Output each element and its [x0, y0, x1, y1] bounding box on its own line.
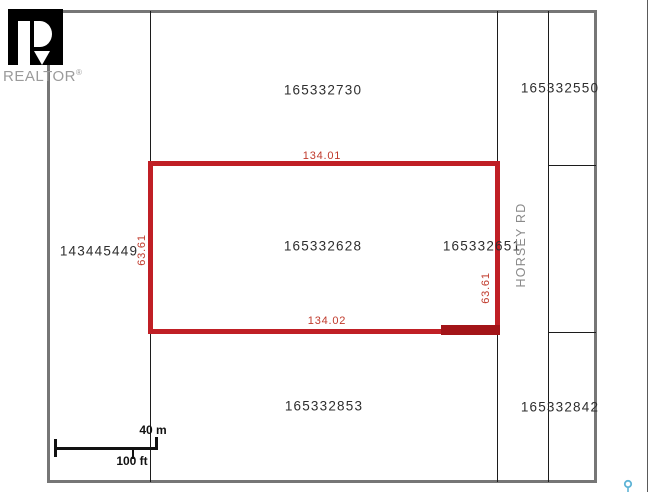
dimension-label-top: 134.01: [303, 150, 341, 162]
road-name-label: HORSEY RD: [514, 203, 528, 288]
parcel-label-bottom-right[interactable]: 165332842: [521, 400, 599, 415]
parcel-map-canvas[interactable]: 165332730 165332550 143445449 165332628 …: [0, 0, 650, 492]
map-pin-icon: [621, 478, 635, 492]
parcel-label-top-right[interactable]: 165332550: [521, 81, 599, 96]
dimension-label-right: 63.61: [480, 272, 492, 304]
scale-bar-tick-right: [155, 437, 158, 450]
scale-imperial-label: 100 ft: [116, 454, 147, 468]
scale-bar-tick-left: [54, 439, 57, 457]
highlighted-parcel-overlap-segment: [441, 325, 500, 335]
registered-mark: ®: [76, 68, 82, 77]
dimension-label-left: 63.61: [136, 234, 148, 266]
parcel-line-horizontal-right-top: [548, 165, 596, 166]
parcel-line-horizontal-right-bottom: [548, 332, 596, 333]
realtor-logo-icon: [8, 9, 63, 65]
parcel-label-highlighted[interactable]: 165332628: [284, 239, 362, 254]
scale-bar: [55, 447, 158, 450]
realtor-wordmark-text: REALTOR: [3, 68, 76, 85]
scale-metric-label: 40 m: [139, 423, 166, 437]
parcel-label-bottom-center[interactable]: 165332853: [285, 399, 363, 414]
parcel-label-right-middle[interactable]: 165332651: [443, 239, 521, 254]
realtor-wordmark: REALTOR®: [3, 68, 82, 85]
parcel-label-left[interactable]: 143445449: [60, 244, 138, 259]
dimension-label-bottom: 134.02: [308, 315, 346, 327]
map-edge-line: [647, 0, 648, 492]
parcel-label-top-center[interactable]: 165332730: [284, 83, 362, 98]
